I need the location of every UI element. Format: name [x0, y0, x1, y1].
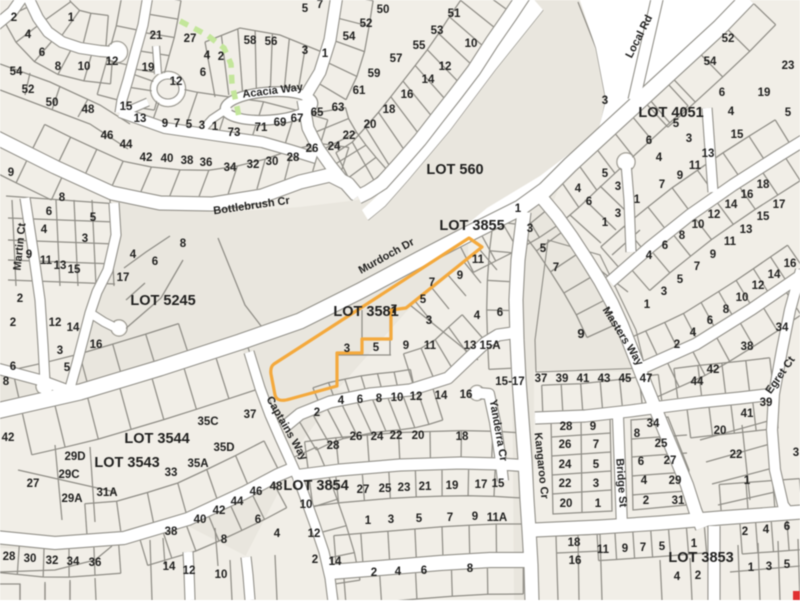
svg-text:6: 6 — [357, 394, 363, 406]
svg-text:6: 6 — [421, 565, 427, 577]
svg-text:6: 6 — [586, 196, 592, 208]
svg-text:25: 25 — [379, 483, 392, 495]
svg-text:35A: 35A — [187, 458, 208, 470]
svg-text:32: 32 — [247, 159, 260, 171]
svg-text:22: 22 — [390, 430, 403, 442]
svg-text:4: 4 — [656, 152, 663, 164]
svg-text:LOT 5245: LOT 5245 — [130, 293, 195, 309]
svg-text:LOT 3544: LOT 3544 — [124, 431, 189, 447]
svg-text:1: 1 — [644, 299, 651, 311]
svg-text:7: 7 — [553, 262, 559, 274]
svg-text:11: 11 — [424, 340, 437, 352]
svg-text:23: 23 — [398, 482, 411, 494]
svg-text:4: 4 — [338, 395, 345, 407]
svg-text:19: 19 — [758, 87, 771, 99]
svg-text:51: 51 — [448, 8, 461, 20]
svg-text:15: 15 — [120, 101, 133, 113]
svg-text:14: 14 — [768, 269, 781, 281]
svg-text:1: 1 — [744, 475, 751, 487]
svg-text:16: 16 — [401, 89, 414, 101]
svg-text:16: 16 — [90, 339, 103, 351]
svg-text:20: 20 — [412, 430, 425, 442]
svg-text:6: 6 — [46, 206, 52, 218]
svg-text:35D: 35D — [213, 442, 234, 454]
svg-text:16: 16 — [460, 389, 473, 401]
svg-text:19: 19 — [446, 480, 459, 492]
svg-text:27: 27 — [184, 33, 197, 45]
svg-text:1: 1 — [365, 515, 372, 527]
svg-text:42: 42 — [2, 432, 15, 444]
svg-text:4: 4 — [25, 29, 32, 41]
svg-text:3: 3 — [527, 223, 533, 235]
svg-text:52: 52 — [22, 84, 35, 96]
svg-text:29C: 29C — [58, 469, 79, 481]
svg-text:15: 15 — [731, 129, 744, 141]
svg-text:40: 40 — [194, 514, 207, 526]
svg-text:8: 8 — [679, 230, 686, 242]
svg-text:5: 5 — [785, 107, 792, 119]
svg-text:57: 57 — [390, 53, 403, 65]
svg-text:14: 14 — [163, 561, 176, 573]
svg-text:35C: 35C — [197, 416, 218, 428]
svg-text:5: 5 — [186, 119, 193, 131]
svg-text:9: 9 — [590, 421, 596, 433]
svg-text:69: 69 — [274, 117, 287, 129]
svg-text:18: 18 — [568, 537, 581, 549]
svg-text:7: 7 — [659, 179, 665, 191]
svg-text:LOT 3854: LOT 3854 — [283, 478, 348, 494]
svg-text:9: 9 — [472, 511, 478, 523]
svg-text:9: 9 — [577, 326, 584, 341]
svg-text:10: 10 — [78, 61, 91, 73]
svg-text:1: 1 — [322, 48, 329, 60]
svg-text:34: 34 — [67, 556, 80, 568]
svg-text:10: 10 — [692, 219, 705, 231]
svg-text:3: 3 — [82, 233, 88, 245]
svg-text:11: 11 — [724, 236, 737, 248]
svg-text:7: 7 — [640, 542, 646, 554]
svg-text:2: 2 — [17, 293, 23, 305]
svg-text:6: 6 — [719, 87, 725, 99]
svg-text:7: 7 — [317, 0, 323, 11]
svg-text:42: 42 — [707, 364, 720, 376]
svg-text:22: 22 — [343, 130, 356, 142]
svg-text:41: 41 — [577, 373, 590, 385]
svg-text:9: 9 — [710, 249, 716, 261]
svg-text:44: 44 — [120, 139, 133, 151]
svg-text:17: 17 — [475, 479, 488, 491]
svg-text:7: 7 — [174, 118, 180, 130]
svg-text:28: 28 — [3, 551, 16, 563]
svg-text:1: 1 — [748, 562, 755, 574]
svg-text:4: 4 — [641, 475, 648, 487]
svg-text:1: 1 — [634, 194, 641, 206]
svg-text:8: 8 — [376, 393, 383, 405]
svg-text:4: 4 — [690, 327, 697, 339]
svg-text:20: 20 — [714, 425, 727, 437]
svg-text:2: 2 — [371, 567, 377, 579]
svg-text:1: 1 — [515, 203, 522, 215]
svg-text:26: 26 — [350, 431, 363, 443]
svg-text:5: 5 — [784, 559, 791, 571]
svg-text:6: 6 — [255, 514, 261, 526]
svg-text:34: 34 — [776, 322, 789, 334]
svg-text:9: 9 — [26, 249, 32, 261]
svg-text:10: 10 — [736, 292, 749, 304]
svg-text:5: 5 — [677, 274, 684, 286]
svg-text:4: 4 — [130, 249, 137, 261]
svg-text:39: 39 — [556, 373, 569, 385]
svg-text:21: 21 — [150, 30, 163, 42]
svg-text:11: 11 — [472, 254, 485, 266]
svg-text:11: 11 — [597, 544, 610, 556]
svg-text:7: 7 — [593, 439, 599, 451]
svg-text:54: 54 — [10, 66, 23, 78]
svg-text:42: 42 — [213, 505, 226, 517]
svg-text:18: 18 — [383, 104, 396, 116]
svg-text:55: 55 — [413, 40, 426, 52]
svg-text:15-17: 15-17 — [495, 376, 524, 388]
svg-text:2: 2 — [674, 339, 680, 351]
svg-text:12: 12 — [170, 76, 183, 88]
svg-text:2: 2 — [312, 554, 318, 566]
svg-text:12: 12 — [410, 391, 423, 403]
svg-text:6: 6 — [638, 456, 644, 468]
svg-text:22: 22 — [730, 449, 743, 461]
svg-text:5: 5 — [416, 513, 423, 525]
svg-text:50: 50 — [377, 4, 390, 16]
svg-text:6: 6 — [10, 361, 16, 373]
svg-text:4: 4 — [674, 571, 681, 583]
svg-text:41: 41 — [741, 408, 754, 420]
svg-text:1: 1 — [602, 217, 609, 229]
svg-text:15A: 15A — [479, 340, 500, 352]
svg-text:53: 53 — [431, 25, 444, 37]
svg-text:15: 15 — [492, 478, 505, 490]
svg-text:16: 16 — [784, 258, 797, 270]
svg-text:73: 73 — [228, 127, 241, 139]
svg-text:24: 24 — [328, 141, 341, 153]
svg-text:30: 30 — [266, 156, 279, 168]
svg-text:56: 56 — [265, 36, 278, 48]
svg-text:9: 9 — [677, 170, 683, 182]
svg-text:13: 13 — [54, 260, 67, 272]
svg-text:1: 1 — [212, 121, 219, 133]
svg-text:21: 21 — [419, 481, 432, 493]
svg-text:27: 27 — [664, 455, 677, 467]
svg-text:2: 2 — [10, 317, 16, 329]
svg-text:23: 23 — [782, 60, 795, 72]
svg-text:8: 8 — [55, 61, 62, 73]
svg-text:34: 34 — [647, 418, 660, 430]
svg-text:44: 44 — [691, 376, 704, 388]
svg-text:31: 31 — [672, 495, 685, 507]
svg-text:52: 52 — [722, 33, 735, 45]
svg-text:28: 28 — [327, 440, 340, 452]
svg-text:3: 3 — [661, 286, 667, 298]
svg-text:58: 58 — [244, 35, 257, 47]
svg-text:63: 63 — [332, 102, 345, 114]
svg-text:3: 3 — [199, 120, 205, 132]
svg-text:20: 20 — [364, 119, 377, 131]
svg-text:10: 10 — [391, 392, 404, 404]
svg-text:1: 1 — [68, 12, 75, 24]
svg-text:48: 48 — [270, 481, 283, 493]
svg-text:5: 5 — [302, 3, 309, 15]
svg-text:46: 46 — [101, 130, 114, 142]
svg-text:8: 8 — [180, 238, 187, 250]
svg-text:30: 30 — [24, 553, 37, 565]
svg-text:5: 5 — [420, 294, 427, 306]
svg-text:12: 12 — [708, 209, 721, 221]
svg-text:5: 5 — [602, 168, 609, 180]
svg-text:2: 2 — [11, 12, 17, 24]
svg-text:5: 5 — [373, 342, 380, 354]
svg-text:43: 43 — [598, 373, 611, 385]
svg-text:1: 1 — [595, 498, 602, 510]
svg-text:12: 12 — [183, 565, 196, 577]
svg-text:31A: 31A — [96, 487, 117, 499]
svg-text:4: 4 — [763, 524, 770, 536]
svg-text:24: 24 — [371, 431, 384, 443]
svg-text:9: 9 — [403, 340, 409, 352]
svg-text:14: 14 — [435, 390, 448, 402]
svg-text:6: 6 — [152, 256, 158, 268]
svg-text:45: 45 — [619, 373, 632, 385]
svg-text:50: 50 — [46, 97, 59, 109]
svg-text:71: 71 — [255, 122, 268, 134]
svg-text:14: 14 — [67, 322, 80, 334]
svg-text:9: 9 — [162, 118, 168, 130]
svg-text:48: 48 — [82, 104, 95, 116]
svg-text:6: 6 — [662, 240, 668, 252]
svg-text:4: 4 — [474, 310, 481, 322]
svg-text:3: 3 — [686, 133, 692, 145]
svg-text:LOT 4051: LOT 4051 — [638, 105, 703, 121]
svg-text:5: 5 — [593, 459, 600, 471]
svg-text:14: 14 — [329, 556, 342, 568]
svg-text:28: 28 — [560, 421, 573, 433]
svg-text:39: 39 — [760, 397, 773, 409]
svg-text:7: 7 — [429, 277, 435, 289]
svg-text:26: 26 — [306, 143, 319, 155]
svg-text:12: 12 — [752, 280, 765, 292]
svg-text:59: 59 — [368, 68, 381, 80]
svg-text:13: 13 — [464, 340, 477, 352]
svg-text:36: 36 — [200, 157, 213, 169]
svg-text:5: 5 — [64, 362, 71, 374]
svg-text:29D: 29D — [64, 451, 85, 463]
svg-text:6: 6 — [200, 67, 206, 79]
svg-text:18: 18 — [757, 179, 770, 191]
svg-text:15: 15 — [68, 264, 81, 276]
svg-text:11: 11 — [40, 255, 53, 267]
svg-text:3: 3 — [57, 345, 63, 357]
svg-text:14: 14 — [422, 74, 435, 86]
svg-text:9: 9 — [8, 167, 14, 179]
svg-text:6: 6 — [707, 315, 713, 327]
svg-text:4: 4 — [41, 224, 48, 236]
svg-text:6: 6 — [646, 135, 652, 147]
svg-text:24: 24 — [559, 459, 572, 471]
svg-text:44: 44 — [231, 496, 244, 508]
svg-text:14: 14 — [725, 199, 738, 211]
svg-text:2: 2 — [643, 495, 649, 507]
svg-text:22: 22 — [559, 478, 572, 490]
svg-text:38: 38 — [741, 341, 754, 353]
svg-text:9: 9 — [622, 543, 628, 555]
svg-text:8: 8 — [59, 192, 66, 204]
svg-text:25: 25 — [655, 438, 668, 450]
svg-text:3: 3 — [426, 315, 432, 327]
svg-text:8: 8 — [221, 534, 228, 546]
svg-text:10: 10 — [215, 569, 228, 581]
svg-text:8: 8 — [723, 304, 730, 316]
svg-text:65: 65 — [311, 107, 324, 119]
svg-text:54: 54 — [343, 31, 356, 43]
svg-text:61: 61 — [353, 85, 366, 97]
svg-text:37: 37 — [244, 409, 257, 421]
svg-text:7: 7 — [447, 512, 453, 524]
svg-text:67: 67 — [291, 113, 304, 125]
svg-text:12: 12 — [439, 61, 452, 73]
svg-text:12: 12 — [308, 528, 321, 540]
svg-text:11: 11 — [689, 160, 702, 172]
svg-text:38: 38 — [165, 526, 178, 538]
svg-text:3: 3 — [593, 478, 599, 490]
svg-text:13: 13 — [740, 224, 753, 236]
svg-text:37: 37 — [535, 373, 548, 385]
svg-text:28: 28 — [287, 152, 300, 164]
svg-text:12: 12 — [106, 56, 119, 68]
svg-text:12: 12 — [49, 317, 62, 329]
svg-text:17: 17 — [773, 199, 786, 211]
svg-text:LOT 3855: LOT 3855 — [439, 218, 504, 234]
svg-text:LOT 3853: LOT 3853 — [668, 550, 733, 566]
svg-text:18: 18 — [456, 431, 469, 443]
svg-text:36: 36 — [89, 557, 102, 569]
svg-text:54: 54 — [704, 56, 717, 68]
svg-text:3: 3 — [302, 45, 308, 57]
svg-text:3: 3 — [793, 447, 799, 459]
svg-text:8: 8 — [467, 563, 474, 575]
svg-text:3: 3 — [344, 343, 350, 355]
svg-text:40: 40 — [161, 153, 174, 165]
svg-text:6: 6 — [497, 307, 503, 319]
svg-text:32: 32 — [46, 555, 59, 567]
svg-text:3: 3 — [388, 514, 394, 526]
svg-text:6: 6 — [39, 47, 45, 59]
svg-text:34: 34 — [224, 162, 237, 174]
svg-text:27: 27 — [27, 478, 40, 490]
svg-text:4: 4 — [204, 50, 211, 62]
svg-text:29A: 29A — [61, 493, 82, 505]
svg-text:2: 2 — [695, 570, 701, 582]
svg-text:20: 20 — [560, 498, 573, 510]
svg-text:11A: 11A — [487, 512, 507, 524]
svg-text:2: 2 — [742, 526, 748, 538]
svg-text:3: 3 — [615, 208, 621, 220]
svg-text:38: 38 — [181, 155, 194, 167]
svg-text:8: 8 — [3, 376, 10, 388]
svg-text:10: 10 — [300, 499, 313, 511]
svg-text:33: 33 — [165, 467, 178, 479]
svg-text:2: 2 — [218, 51, 224, 63]
svg-text:10: 10 — [465, 38, 478, 50]
svg-text:1: 1 — [691, 538, 698, 550]
svg-text:6: 6 — [784, 521, 790, 533]
svg-text:47: 47 — [640, 373, 653, 385]
svg-text:19: 19 — [142, 62, 155, 74]
svg-text:4: 4 — [395, 566, 402, 578]
svg-text:8: 8 — [634, 428, 641, 440]
svg-text:9: 9 — [457, 270, 463, 282]
svg-text:46: 46 — [250, 486, 263, 498]
svg-text:27: 27 — [357, 484, 370, 496]
svg-text:16: 16 — [741, 189, 754, 201]
svg-text:5: 5 — [659, 541, 666, 553]
svg-text:16: 16 — [569, 555, 582, 567]
svg-text:52: 52 — [360, 18, 373, 30]
svg-text:2: 2 — [314, 407, 320, 419]
svg-text:4: 4 — [646, 250, 653, 262]
svg-text:4: 4 — [274, 528, 281, 540]
svg-text:15: 15 — [757, 211, 770, 223]
svg-text:LOT 3543: LOT 3543 — [94, 455, 159, 471]
svg-text:17: 17 — [117, 272, 130, 284]
svg-text:5: 5 — [90, 212, 97, 224]
svg-text:LOT 560: LOT 560 — [426, 162, 483, 178]
svg-text:7: 7 — [694, 261, 700, 273]
svg-text:3: 3 — [615, 181, 621, 193]
svg-text:26: 26 — [559, 439, 572, 451]
svg-text:3: 3 — [766, 561, 772, 573]
svg-text:13: 13 — [702, 148, 715, 160]
svg-text:42: 42 — [140, 152, 153, 164]
svg-text:3: 3 — [602, 95, 608, 107]
svg-text:4: 4 — [728, 106, 735, 118]
svg-text:5: 5 — [540, 243, 547, 255]
svg-text:29: 29 — [669, 475, 682, 487]
svg-text:13: 13 — [134, 113, 147, 125]
svg-text:LOT 3581: LOT 3581 — [333, 304, 398, 320]
svg-text:4: 4 — [575, 183, 582, 195]
